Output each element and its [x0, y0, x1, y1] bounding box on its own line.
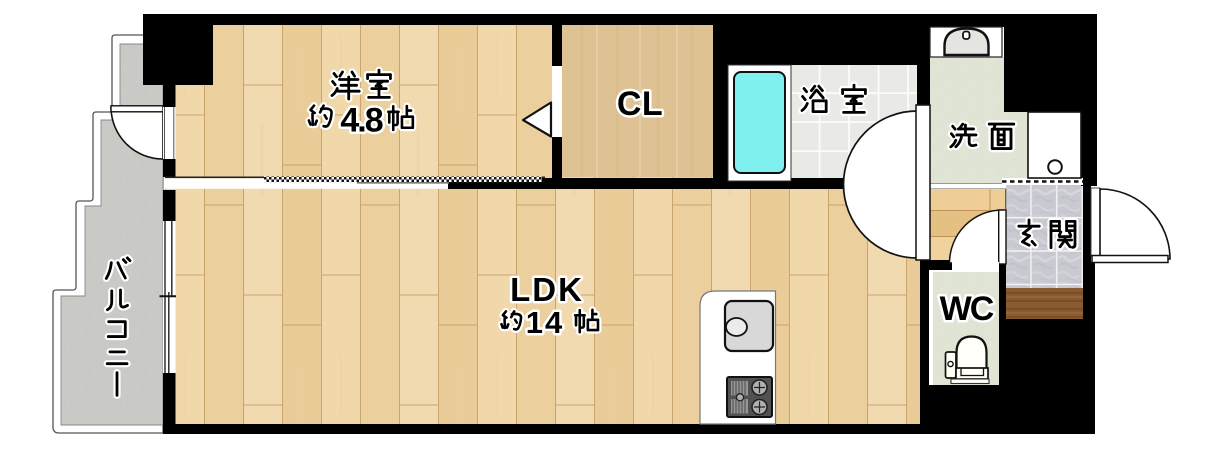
- svg-text:14: 14: [526, 305, 564, 340]
- svg-text:CL: CL: [617, 85, 663, 123]
- svg-text:WC: WC: [940, 290, 994, 328]
- svg-text:4.8: 4.8: [340, 102, 382, 140]
- svg-text:LDK: LDK: [510, 271, 584, 308]
